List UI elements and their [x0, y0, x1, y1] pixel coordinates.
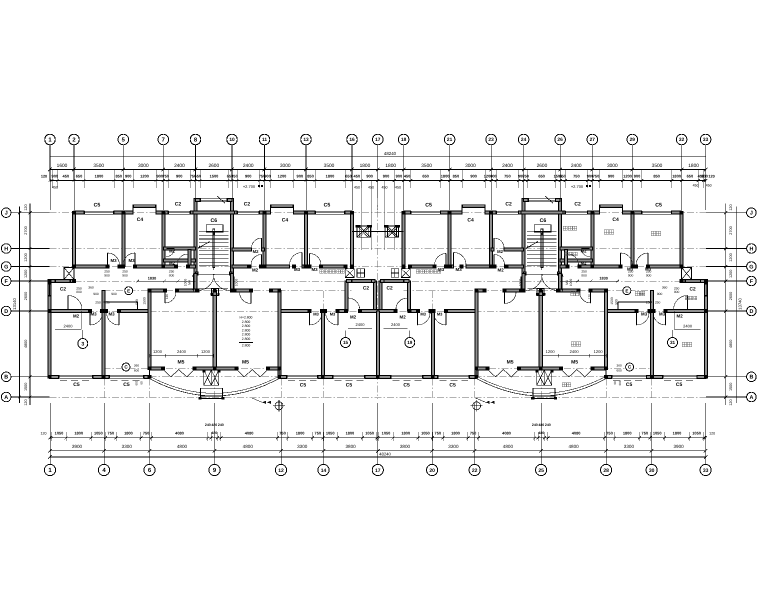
svg-text:120: 120 [24, 399, 28, 405]
svg-text:1500: 1500 [729, 383, 733, 391]
svg-text:C5: C5 [626, 382, 633, 388]
svg-text:18: 18 [401, 137, 407, 143]
svg-text:2.800: 2.800 [242, 337, 251, 341]
svg-text:240: 240 [545, 423, 551, 427]
svg-text:900: 900 [264, 174, 271, 179]
svg-text:1200: 1200 [278, 174, 287, 179]
svg-text:1800: 1800 [95, 174, 104, 179]
svg-text:1830: 1830 [148, 276, 156, 280]
svg-text:240: 240 [218, 423, 224, 427]
svg-text:M2: M2 [253, 249, 259, 254]
svg-text:C4: C4 [282, 218, 289, 224]
svg-text:M5: M5 [571, 360, 578, 366]
svg-text:C4: C4 [467, 218, 474, 224]
svg-text:3300: 3300 [448, 444, 459, 449]
svg-text:120: 120 [729, 399, 733, 405]
svg-text:3500: 3500 [324, 163, 335, 169]
svg-text:23: 23 [488, 137, 494, 143]
svg-text:120: 120 [24, 204, 28, 210]
svg-text:33: 33 [703, 137, 709, 143]
svg-text:900: 900 [176, 174, 183, 179]
svg-text:450: 450 [63, 174, 70, 179]
svg-text:M2: M2 [581, 261, 587, 266]
svg-text:C5: C5 [676, 382, 683, 388]
svg-text:2400: 2400 [64, 324, 74, 329]
svg-text:3: 3 [81, 341, 84, 347]
svg-text:900: 900 [383, 174, 390, 179]
svg-text:850: 850 [307, 174, 314, 179]
svg-text:2600: 2600 [208, 163, 219, 169]
svg-text:M2: M2 [252, 268, 259, 273]
svg-text:360: 360 [134, 364, 139, 368]
svg-text:C2: C2 [363, 286, 369, 292]
svg-text:26: 26 [557, 137, 563, 143]
svg-text:1050: 1050 [94, 431, 103, 436]
svg-text:120: 120 [41, 175, 47, 179]
svg-text:J: J [750, 211, 753, 217]
svg-text:3900: 3900 [673, 444, 684, 449]
svg-text:13140: 13140 [12, 298, 17, 310]
svg-text:G: G [749, 264, 753, 270]
svg-text:E: E [127, 288, 130, 293]
svg-text:29: 29 [630, 137, 636, 143]
svg-text:25: 25 [538, 468, 544, 474]
svg-text:900: 900 [646, 274, 652, 278]
svg-text:17: 17 [375, 137, 381, 143]
svg-text:4080: 4080 [572, 431, 581, 436]
svg-text:24: 24 [521, 137, 527, 143]
svg-text:1500: 1500 [24, 383, 28, 391]
svg-text:M2: M2 [350, 315, 357, 320]
svg-text:C6: C6 [210, 218, 217, 224]
svg-text:H: H [749, 246, 753, 252]
svg-text:2400: 2400 [177, 349, 187, 354]
svg-text:M3: M3 [313, 312, 319, 317]
svg-text:M2: M2 [73, 314, 80, 319]
svg-text:2400: 2400 [391, 322, 401, 327]
svg-text:3000: 3000 [607, 163, 618, 169]
svg-text:M3: M3 [330, 312, 336, 317]
svg-text:22: 22 [472, 468, 478, 474]
svg-text:33: 33 [703, 468, 709, 474]
svg-text:4080: 4080 [175, 431, 184, 436]
svg-text:450: 450 [52, 186, 58, 190]
svg-text:2400: 2400 [683, 324, 693, 329]
svg-text:750: 750 [573, 174, 580, 179]
svg-text:4800: 4800 [243, 444, 254, 449]
svg-text:C6: C6 [540, 218, 547, 224]
svg-text:800: 800 [674, 290, 680, 294]
svg-text:480: 480 [211, 423, 217, 427]
svg-text:750: 750 [108, 431, 115, 436]
svg-text:1830: 1830 [599, 276, 607, 280]
svg-text:3300: 3300 [297, 444, 308, 449]
svg-text:4080: 4080 [245, 431, 254, 436]
svg-text:900: 900 [366, 174, 373, 179]
svg-text:19: 19 [407, 340, 413, 345]
svg-text:C5: C5 [324, 202, 331, 208]
svg-text:1800: 1800 [326, 174, 335, 179]
svg-text:1050: 1050 [55, 431, 64, 436]
svg-text:30: 30 [649, 468, 655, 474]
svg-text:48240: 48240 [379, 451, 391, 456]
svg-text:1800: 1800 [688, 163, 699, 169]
svg-text:450: 450 [354, 174, 361, 179]
svg-text:600: 600 [134, 369, 139, 373]
svg-text:450: 450 [354, 186, 360, 190]
svg-text:M2: M2 [581, 249, 587, 254]
svg-text:360: 360 [88, 286, 94, 290]
svg-text:3300: 3300 [624, 444, 635, 449]
svg-text:750: 750 [231, 174, 238, 179]
svg-text:800: 800 [581, 274, 587, 278]
svg-text:27: 27 [590, 137, 596, 143]
svg-text:450: 450 [368, 186, 374, 190]
svg-text:4800: 4800 [503, 444, 514, 449]
svg-text:D: D [749, 309, 753, 315]
svg-text:120: 120 [41, 431, 47, 435]
svg-text:28: 28 [603, 468, 609, 474]
svg-text:A: A [749, 395, 753, 401]
svg-text:D: D [4, 309, 8, 315]
svg-text:900: 900 [93, 292, 99, 296]
svg-text:M5: M5 [507, 360, 514, 366]
svg-text:1800: 1800 [296, 431, 305, 436]
svg-text:750: 750 [642, 431, 649, 436]
svg-text:2700: 2700 [729, 226, 733, 234]
svg-text:C4: C4 [137, 217, 144, 223]
svg-text:1800: 1800 [672, 174, 681, 179]
svg-text:C2: C2 [175, 202, 182, 208]
svg-text:1200: 1200 [201, 349, 211, 354]
svg-text:M3: M3 [128, 258, 135, 263]
svg-text:1500: 1500 [143, 297, 147, 305]
svg-text:1050: 1050 [653, 431, 662, 436]
svg-text:1800: 1800 [360, 163, 371, 169]
svg-text:360: 360 [662, 286, 668, 290]
svg-text:48240: 48240 [384, 151, 397, 156]
svg-text:10: 10 [229, 137, 235, 143]
svg-text:E: E [625, 288, 628, 293]
svg-text:1200: 1200 [546, 349, 556, 354]
svg-text:120: 120 [708, 175, 714, 179]
svg-text:2600: 2600 [24, 292, 28, 300]
svg-text:C5: C5 [449, 382, 456, 388]
svg-text:1200: 1200 [729, 253, 733, 261]
svg-text:1800: 1800 [385, 163, 396, 169]
svg-text:850: 850 [453, 174, 460, 179]
svg-text:3000: 3000 [138, 163, 149, 169]
svg-text:1800: 1800 [124, 431, 133, 436]
svg-text:900: 900 [297, 174, 304, 179]
svg-text:900: 900 [628, 274, 634, 278]
svg-text:M2: M2 [498, 268, 505, 273]
svg-text:1000: 1000 [569, 279, 573, 287]
svg-text:900: 900 [122, 274, 128, 278]
svg-text:12: 12 [278, 468, 284, 474]
svg-text:C5: C5 [425, 202, 432, 208]
svg-text:C5: C5 [123, 382, 130, 388]
svg-text:C2: C2 [690, 286, 696, 292]
svg-text:750: 750 [470, 431, 477, 436]
svg-text:120: 120 [165, 294, 169, 299]
svg-text:900: 900 [701, 174, 708, 179]
svg-text:800: 800 [169, 274, 175, 278]
svg-text:1800: 1800 [673, 431, 682, 436]
svg-text:850: 850 [115, 174, 122, 179]
svg-text:850: 850 [653, 174, 660, 179]
svg-text:17: 17 [375, 468, 381, 474]
svg-text:2400: 2400 [174, 163, 185, 169]
svg-text:4080: 4080 [502, 431, 511, 436]
svg-text:3300: 3300 [122, 444, 133, 449]
svg-text:480: 480 [538, 423, 544, 427]
svg-text:7: 7 [162, 138, 165, 144]
svg-text:C2: C2 [387, 286, 393, 292]
svg-text:3800: 3800 [400, 444, 411, 449]
svg-text:4800: 4800 [729, 340, 733, 348]
svg-text:900: 900 [470, 174, 477, 179]
svg-text:1800: 1800 [346, 431, 355, 436]
svg-text:B: B [4, 375, 8, 381]
svg-text:H: H [4, 246, 8, 252]
svg-text:1050: 1050 [326, 431, 335, 436]
svg-text:650: 650 [687, 174, 694, 179]
svg-text:31: 31 [670, 340, 676, 345]
svg-text:1200: 1200 [153, 349, 163, 354]
svg-text:C2: C2 [505, 202, 512, 208]
svg-text:16: 16 [349, 137, 355, 143]
svg-text:C2: C2 [574, 202, 581, 208]
svg-text:1500: 1500 [610, 297, 614, 305]
svg-text:2.800: 2.800 [242, 343, 251, 347]
svg-text:1050: 1050 [382, 431, 391, 436]
svg-text:480: 480 [538, 431, 544, 435]
svg-text:2400: 2400 [243, 163, 254, 169]
svg-text:900: 900 [111, 292, 117, 296]
svg-text:1050: 1050 [421, 431, 430, 436]
svg-text:C5: C5 [403, 382, 410, 388]
svg-text:1000: 1000 [518, 279, 522, 287]
svg-text:20: 20 [429, 468, 435, 474]
svg-text:1200: 1200 [24, 253, 28, 261]
svg-text:M4: M4 [188, 280, 192, 285]
svg-text:60: 60 [140, 381, 144, 385]
svg-text:240: 240 [532, 423, 538, 427]
svg-text:900: 900 [104, 274, 110, 278]
svg-text:1050: 1050 [692, 431, 701, 436]
svg-text:M2: M2 [400, 315, 407, 320]
svg-text:M2: M2 [677, 314, 684, 319]
svg-text:2: 2 [72, 137, 75, 144]
svg-text:750: 750 [606, 431, 613, 436]
svg-text:900: 900 [396, 174, 403, 179]
svg-text:M3: M3 [110, 258, 117, 263]
svg-text:M3: M3 [108, 312, 115, 317]
svg-text:750: 750 [315, 431, 322, 436]
svg-text:650: 650 [76, 174, 83, 179]
svg-text:3900: 3900 [72, 444, 83, 449]
svg-text:4800: 4800 [177, 444, 188, 449]
svg-text:1800: 1800 [451, 431, 460, 436]
svg-text:900: 900 [125, 174, 132, 179]
svg-text:450: 450 [706, 184, 712, 188]
svg-text:M3: M3 [311, 267, 318, 272]
svg-text:C5: C5 [94, 202, 101, 208]
svg-text:1800: 1800 [401, 431, 410, 436]
svg-text:3000: 3000 [280, 163, 291, 169]
svg-text:750: 750 [435, 431, 442, 436]
svg-text:650: 650 [559, 174, 566, 179]
svg-text:450: 450 [404, 174, 411, 179]
svg-text:900: 900 [245, 174, 252, 179]
svg-text:32: 32 [679, 137, 685, 143]
svg-text:2600: 2600 [537, 163, 548, 169]
svg-text:3500: 3500 [652, 163, 663, 169]
svg-text:M2: M2 [497, 249, 503, 254]
svg-text:+2.700: +2.700 [243, 184, 256, 189]
svg-text:900: 900 [634, 174, 641, 179]
svg-text:M4: M4 [565, 280, 569, 285]
svg-text:C5: C5 [655, 202, 662, 208]
svg-text:4800: 4800 [24, 340, 28, 348]
svg-text:1200: 1200 [140, 174, 149, 179]
svg-text:C5: C5 [346, 382, 353, 388]
svg-text:M5: M5 [242, 360, 249, 366]
svg-text:800: 800 [76, 290, 82, 294]
svg-text:1200: 1200 [623, 174, 632, 179]
svg-text:2700: 2700 [24, 226, 28, 234]
svg-text:M2: M2 [169, 249, 175, 254]
svg-text:600: 600 [135, 380, 139, 385]
svg-text:240: 240 [205, 423, 211, 427]
svg-text:2400: 2400 [571, 163, 582, 169]
svg-text:1600: 1600 [57, 163, 68, 169]
svg-text:3000: 3000 [465, 163, 476, 169]
svg-text:C5: C5 [73, 382, 80, 388]
svg-text:1500: 1500 [210, 174, 219, 179]
svg-text:250: 250 [655, 301, 661, 305]
svg-text:11: 11 [262, 137, 267, 143]
svg-text:360: 360 [617, 364, 622, 368]
svg-text:4800: 4800 [568, 444, 579, 449]
svg-text:1800: 1800 [623, 431, 632, 436]
svg-text:3500: 3500 [421, 163, 432, 169]
svg-text:120: 120 [709, 431, 715, 435]
svg-text:120: 120 [729, 204, 733, 210]
svg-text:+2.700: +2.700 [571, 184, 584, 189]
svg-text:750: 750 [162, 174, 169, 179]
svg-text:480: 480 [211, 431, 217, 435]
svg-text:B: B [749, 375, 753, 381]
svg-text:750: 750 [143, 431, 150, 436]
svg-text:450: 450 [395, 186, 401, 190]
svg-text:650: 650 [422, 174, 429, 179]
svg-text:M5: M5 [178, 360, 185, 366]
svg-text:1800: 1800 [74, 431, 83, 436]
svg-text:1200: 1200 [729, 270, 733, 278]
svg-text:750: 750 [522, 174, 529, 179]
svg-text:750: 750 [279, 431, 286, 436]
svg-text:3500: 3500 [93, 163, 104, 169]
svg-text:1200: 1200 [24, 270, 28, 278]
svg-text:60: 60 [613, 381, 617, 385]
svg-text:600: 600 [618, 380, 622, 385]
svg-text:G: G [4, 264, 8, 270]
svg-text:650: 650 [345, 174, 352, 179]
svg-text:2600: 2600 [729, 292, 733, 300]
svg-text:13740: 13740 [737, 298, 742, 310]
svg-text:900: 900 [490, 174, 497, 179]
svg-text:M3: M3 [437, 312, 443, 317]
svg-text:C4: C4 [612, 217, 619, 223]
svg-text:450: 450 [382, 186, 388, 190]
svg-text:2400: 2400 [570, 349, 580, 354]
svg-text:750: 750 [593, 174, 600, 179]
svg-text:120: 120 [588, 294, 592, 299]
svg-text:1200: 1200 [594, 349, 604, 354]
svg-text:650: 650 [195, 174, 202, 179]
svg-text:1800: 1800 [441, 174, 450, 179]
svg-text:750: 750 [504, 174, 511, 179]
svg-text:900: 900 [52, 174, 59, 179]
svg-text:250: 250 [95, 301, 101, 305]
svg-text:900: 900 [608, 174, 615, 179]
svg-text:C2: C2 [60, 286, 66, 292]
svg-text:900: 900 [657, 292, 663, 296]
svg-text:600: 600 [617, 369, 622, 373]
svg-text:M3: M3 [641, 312, 648, 317]
svg-text:M3: M3 [420, 312, 426, 317]
svg-text:C5: C5 [300, 382, 307, 388]
svg-text:J: J [5, 211, 8, 217]
svg-text:13: 13 [303, 137, 309, 143]
svg-text:2400: 2400 [356, 322, 366, 327]
svg-text:15: 15 [343, 340, 349, 345]
svg-text:1050: 1050 [365, 431, 374, 436]
svg-text:A: A [4, 395, 8, 401]
svg-text:21: 21 [447, 137, 453, 143]
svg-text:450: 450 [693, 184, 699, 188]
svg-text:14: 14 [321, 468, 327, 474]
svg-text:C2: C2 [244, 202, 251, 208]
svg-text:2400: 2400 [502, 163, 513, 169]
svg-text:3800: 3800 [345, 444, 356, 449]
svg-text:650: 650 [538, 174, 545, 179]
